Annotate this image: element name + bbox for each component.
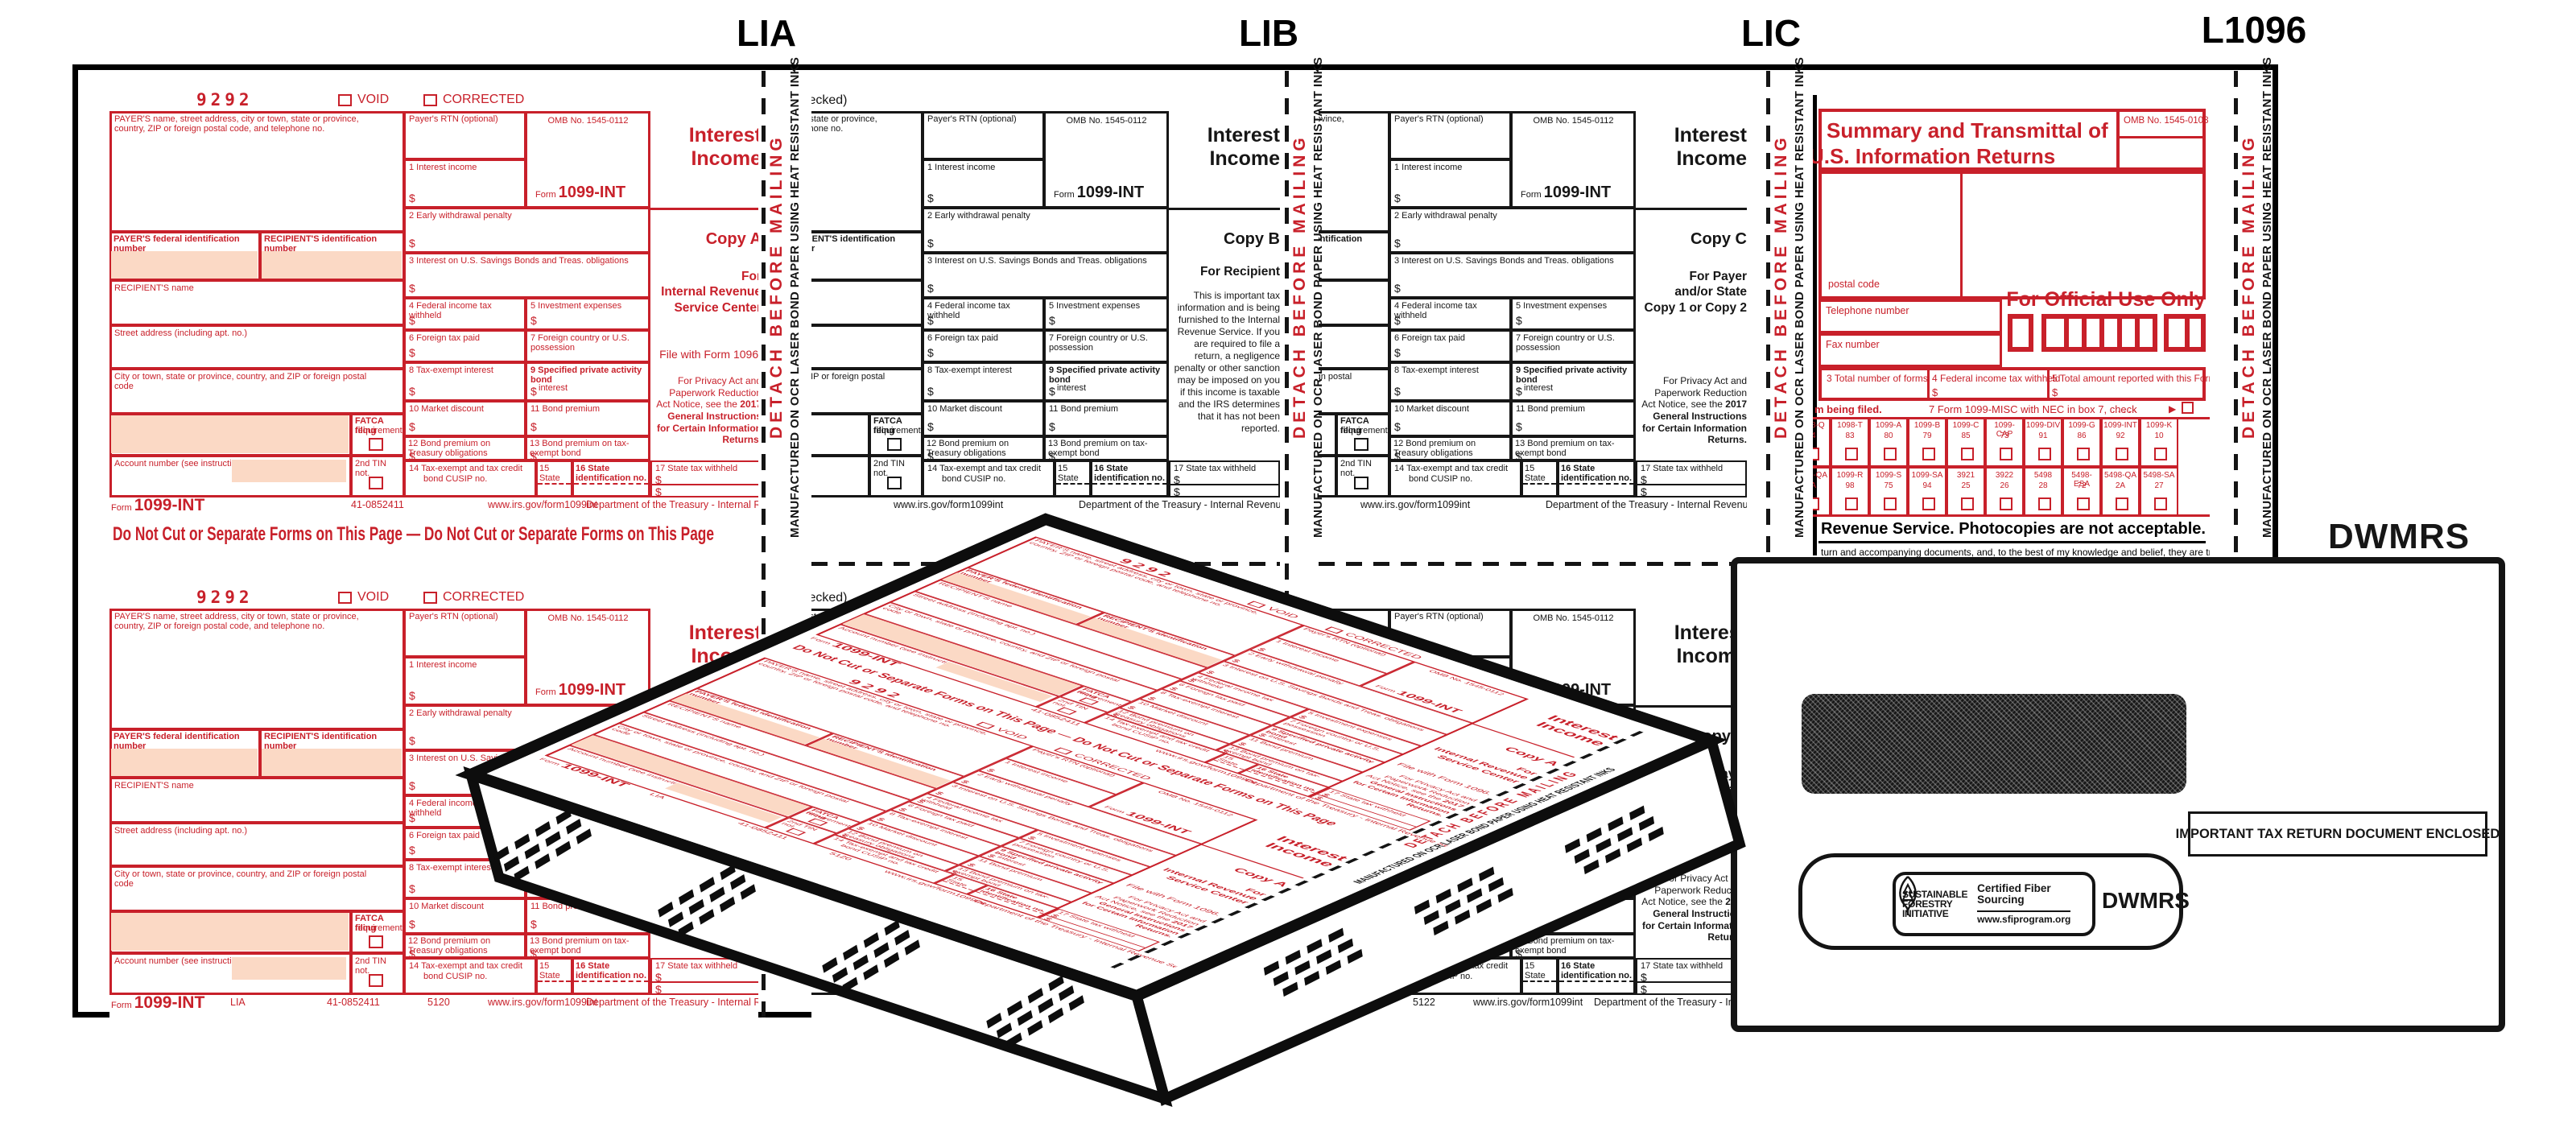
dollar-sign: $: [854, 826, 867, 831]
box6-foreign-tax: 6 Foreign tax paid$: [1389, 330, 1511, 362]
detach-before-mailing-text: DETACH BEFORE MAILING: [1290, 134, 1310, 439]
box11-label: 11 Bond premium: [530, 902, 600, 911]
h-perforation: [1319, 562, 1747, 566]
omb-label: OMB No. 1545-0112: [1513, 116, 1634, 126]
omb-box: OMB No. 1545-0112Form 1099-INT: [526, 111, 650, 208]
box11-bond-premium: 11 Bond premium$: [1511, 401, 1636, 436]
dollar-sign: $: [409, 734, 415, 747]
formtype-number: 92: [2103, 431, 2138, 440]
form-code-9292: 9292: [196, 90, 254, 109]
f1096-box4-label: 4 Federal income tax withheld: [1932, 373, 2060, 384]
box8-label: 8 Tax-exempt interest: [409, 365, 493, 375]
footer-dept: Department of the Treasury - Internal Re…: [1594, 997, 1747, 1008]
box13-tax-exempt-bond: 13 Bond premium on tax-exempt bond$: [526, 934, 650, 958]
box14-cusip: 14 Tax-exempt and tax creditbond CUSIP n…: [923, 460, 1055, 497]
box10-market-discount: 10 Market discount$: [1389, 898, 1511, 934]
box2-early-withdrawal: 2 Early withdrawal penalty$: [404, 208, 650, 253]
box16-state-id: 16 State identification no.: [1558, 460, 1636, 497]
payer-name-box: PAYER'S name, street address, city or to…: [811, 111, 923, 232]
box6-label: 6 Foreign tax paid: [409, 333, 480, 343]
box2-early-withdrawal: 2 Early withdrawal penalty$: [923, 208, 1169, 253]
divider: [2120, 136, 2202, 138]
payer-rtn-label: Payer's RTN (optional): [409, 612, 498, 621]
copy-label: Copy C: [1690, 230, 1747, 249]
box15-label: 15 State: [1525, 464, 1556, 484]
comb-group: [2041, 314, 2157, 352]
box15-state: 15 State: [1521, 958, 1558, 995]
box3-label: 3 Interest on U.S. Savings Bonds and Tre…: [927, 256, 1161, 266]
box8-label: 8 Tax-exempt interest: [927, 365, 1012, 375]
box3-savings-bonds: 3 Interest on U.S. Savings Bonds and Tre…: [404, 253, 650, 298]
payer-rtn-label: Payer's RTN (optional): [1394, 114, 1484, 124]
box11-label: 11 Bond premium: [1516, 902, 1585, 911]
sfi-badge-panel: SUSTAINABLE FORESTRY INITIATIVE Certifie…: [1798, 853, 2183, 950]
box5-investment: 5 Investment expenses$: [526, 298, 650, 330]
fatca-checkbox: [369, 935, 383, 948]
formtype-name: 5498-QA: [2103, 471, 2138, 480]
formtype-cell: 1099-K10: [2140, 417, 2178, 467]
box9-label-2: interest: [1057, 383, 1086, 393]
dollar-sign: $: [530, 314, 537, 327]
formtype-cell: 5498-ESA72: [2062, 467, 2101, 517]
dollar-sign: $: [897, 807, 910, 812]
privacy-note: For Privacy Act and Paperwork Reduction …: [654, 873, 758, 943]
form-number-tag: Form 1099-INT: [1054, 184, 1144, 202]
footer-dept: Department of the Treasury - Internal Re…: [586, 997, 758, 1008]
box12-label: 12 Bond premium on Treasury obligations: [1393, 936, 1510, 956]
formtype-checkbox: [2077, 448, 2090, 460]
f1096-official-use: For Official Use Only: [2006, 288, 2206, 312]
dollar-sign: $: [927, 237, 934, 250]
form-title: InterestIncome: [1259, 835, 1352, 869]
recipient-id-box: RECIPIENT'S identification number: [811, 232, 923, 280]
dashed-divider: [1559, 483, 1634, 485]
manufactured-text: MANUFACTURED ON OCR LASER BOND PAPER USI…: [788, 57, 802, 538]
account-box: Account number (see instructions): [811, 456, 869, 497]
box14-label-2: bond CUSIP no.: [942, 474, 1005, 484]
box10-market-discount: 10 Market discount$: [1389, 401, 1511, 436]
footer-url: www.irs.gov/form1099int: [488, 499, 597, 510]
corrected-label: CORRECTED (if checked): [811, 591, 847, 605]
box4-label: 4 Federal income tax withheld: [1394, 301, 1509, 321]
dollar-sign: $: [1394, 385, 1401, 398]
privacy-note: For Privacy Act and Paperwork Reduction …: [1639, 375, 1747, 446]
box12-treasury: 12 Bond premium on Treasury obligations$: [1389, 436, 1511, 460]
second-tin-checkbox: [887, 974, 902, 987]
divider: [1960, 174, 1963, 297]
box6-foreign-tax: 6 Foreign tax paid$: [923, 330, 1044, 362]
detach-before-mailing-text: DETACH BEFORE MAILING: [767, 134, 786, 439]
formtype-cell: 392125: [1946, 467, 1985, 517]
omb-box: OMB No. 1545-0112Form 1099-INT: [1044, 111, 1169, 208]
formtype-checkbox: [2116, 497, 2128, 510]
envelope-code-label: DWMRS: [2328, 517, 2470, 557]
city-label: City or town, state or province, country…: [114, 869, 388, 890]
box7-label: 7 Foreign country or U.S. possession: [530, 333, 647, 353]
formtype-cell: 1099-C85: [1946, 417, 1985, 467]
manufactured-text: MANUFACTURED ON OCR LASER BOND PAPER USI…: [1311, 57, 1325, 538]
file-with-label: File with Form 1096.: [659, 348, 758, 361]
perforation-line: [1766, 71, 1770, 554]
dashed-divider: [1092, 483, 1167, 485]
payer-rtn-label: Payer's RTN (optional): [1394, 612, 1484, 621]
dollar-sign: $: [927, 918, 934, 931]
dollar-sign: $: [1394, 918, 1401, 931]
omb-label: OMB No. 1545-0112: [1046, 116, 1167, 126]
formtype-cell: 1099-R98: [1831, 467, 1869, 517]
box12-treasury: 12 Bond premium on Treasury obligations$: [1389, 934, 1511, 958]
formtype-checkbox: [2116, 448, 2128, 460]
form-1099-lib-1: CORRECTED (if checked)PAYER'S name, stre…: [811, 90, 1280, 515]
box15-label: 15 State: [1058, 464, 1089, 484]
f1096-box5-label: 5 Total amount reported with this Form 1…: [2052, 373, 2210, 384]
fatca-label-2: requirement: [873, 426, 921, 436]
copy-label: Copy B: [1224, 230, 1280, 249]
formtype-cell: 1099-G86: [2062, 417, 2101, 467]
box9-label-1: 9 Specified private activity bond: [1516, 365, 1633, 386]
payer-name-box: PAYER'S name, street address, city or to…: [109, 609, 404, 729]
omb-label: OMB No. 1545-0112: [1513, 613, 1634, 623]
box1-label: 1 Interest income: [927, 163, 995, 172]
privacy-note: For Privacy Act and Paperwork Reduction …: [654, 375, 758, 446]
dollar-sign: $: [927, 385, 934, 398]
dollar-sign: $: [1125, 705, 1138, 710]
box12-label: 12 Bond premium on Treasury obligations: [408, 936, 525, 956]
fatca-box: FATCA filingrequirement: [869, 911, 923, 953]
dollar-sign: $: [1516, 420, 1522, 433]
footer-url: www.irs.gov/form1099int: [1360, 499, 1470, 510]
formtype-name: 1099-B: [1909, 421, 1945, 430]
shaded-row-box: [109, 911, 351, 953]
box11-bond-premium: 11 Bond premium$: [526, 401, 650, 436]
box16-label: 16 State identification no.: [1561, 464, 1635, 484]
formtype-number: 80: [1871, 431, 1906, 440]
fatca-box: FATCA filingrequirement: [869, 414, 923, 456]
box6-label: 6 Foreign tax paid: [1394, 333, 1465, 343]
box11-bond-premium: 11 Bond premium$: [526, 898, 650, 934]
box2-label: 2 Early withdrawal penalty: [409, 708, 512, 718]
formtype-number: 79: [1909, 431, 1945, 440]
formtype-cell: 1099-INT92: [2101, 417, 2140, 467]
window-envelope: IMPORTANT TAX RETURN DOCUMENT ENCLOSED S…: [1731, 557, 2505, 1032]
formtype-cell: 1099-SA94: [1908, 467, 1946, 517]
dollar-sign: $: [1516, 882, 1522, 895]
for-whom: For Payerand/or StateCopy 1 or Copy 2: [1645, 269, 1747, 316]
box7-label: 7 Foreign country or U.S. possession: [1516, 333, 1633, 353]
box14-label-1: 14 Tax-exempt and tax credit: [927, 961, 1041, 971]
formtype-name: 1098-Q: [1813, 421, 1829, 430]
label-lic: LIC: [1741, 11, 1801, 55]
footer-url: www.irs.gov/form1099int: [1473, 997, 1583, 1008]
f1096-address-box: postal code: [1818, 171, 2206, 299]
shaded-band: [811, 251, 920, 279]
box5-investment: 5 Investment expenses$: [1511, 298, 1636, 330]
payer-rtn-box: Payer's RTN (optional): [923, 111, 1044, 159]
formtype-cell: 5498-QA2A: [2101, 467, 2140, 517]
box14-label-1: 14 Tax-exempt and tax credit: [1394, 961, 1508, 971]
formtype-cell: 1098-Q74: [1813, 417, 1831, 467]
formtype-number: 1A: [1813, 481, 1829, 490]
formtype-cell: 5498-SA27: [2140, 467, 2178, 517]
payer-block-label: PAYER'S name, street address, city or to…: [114, 612, 388, 632]
box11-label: 11 Bond premium: [530, 404, 600, 414]
formtype-name: 1099-R: [1832, 471, 1868, 480]
dollar-sign: $: [1026, 836, 1038, 840]
formtype-checkbox: [1813, 497, 1819, 510]
fatca-box: FATCA filingrequirement: [1336, 911, 1389, 953]
payer-rtn-box: Payer's RTN (optional): [1389, 111, 1511, 159]
box11-bond-premium: 11 Bond premium$: [1511, 898, 1636, 934]
shaded-band: [1319, 913, 1334, 951]
formtype-number: 26: [1987, 481, 2022, 490]
label-lia: LIA: [737, 11, 796, 55]
city-box: City or town, state or province, country…: [109, 866, 404, 911]
box9-private-activity: 9 Specified private activity bondinteres…: [1511, 860, 1636, 898]
box13-label: 13 Bond premium on tax-exempt bond: [1048, 439, 1169, 459]
formtype-number: 86: [2064, 431, 2099, 440]
box16-state-id: 16 State identification no.: [572, 460, 650, 497]
box14-label-1: 14 Tax-exempt and tax credit: [927, 464, 1041, 473]
box15-state: 15 State: [1521, 460, 1558, 497]
detach-before-mailing-text: DETACH BEFORE MAILING: [2240, 134, 2259, 439]
fatca-checkbox: [369, 438, 383, 451]
void-checkbox: [338, 94, 352, 106]
formtype-checkbox: [1922, 497, 1935, 510]
dashed-divider: [1523, 483, 1556, 485]
f1096-declaration: turn and accompanying documents, and, to…: [1821, 547, 2210, 558]
box3-savings-bonds: 3 Interest on U.S. Savings Bonds and Tre…: [1389, 253, 1636, 298]
shaded-band: [111, 749, 258, 776]
box7-foreign-country: 7 Foreign country or U.S. possession: [1511, 828, 1636, 860]
arrow-icon: ▶: [2169, 403, 2176, 415]
shaded-band: [111, 913, 349, 951]
second-tin-label: 2nd TIN not.: [873, 459, 921, 479]
box7-foreign-country: 7 Foreign country or U.S. possession: [526, 330, 650, 362]
formtype-name: 1099-C: [1948, 421, 1984, 430]
box2-early-withdrawal: 2 Early withdrawal penalty$: [1389, 208, 1636, 253]
box7-label: 7 Foreign country or U.S. possession: [1516, 831, 1633, 851]
box10-market-discount: 10 Market discount$: [404, 401, 526, 436]
shaded-patch: [811, 957, 865, 980]
second-tin-box: 2nd TIN not.: [869, 953, 923, 995]
footer-page_code_2: 5122: [1413, 997, 1435, 1008]
omb-label: OMB No. 1545-0112: [527, 116, 649, 126]
dollar-sign: $: [927, 192, 934, 204]
formtype-name: 1099-SA: [1909, 471, 1945, 480]
box6-foreign-tax: 6 Foreign tax paid$: [404, 828, 526, 860]
shaded-patch: [232, 957, 346, 980]
corrected-checkbox: [423, 592, 437, 604]
dollar-sign: $: [1394, 420, 1401, 433]
formtype-number: 83: [1832, 431, 1868, 440]
box8-label: 8 Tax-exempt interest: [1394, 365, 1479, 375]
street-label: Street address (including apt. no.): [114, 328, 247, 338]
fatca-label-2: requirement: [355, 426, 402, 436]
dollar-sign: $: [1049, 420, 1055, 433]
account-label: Account number (see instructions): [114, 459, 249, 469]
box9-private-activity: 9 Specified private activity bondinteres…: [1511, 362, 1636, 401]
comb-divider: [2135, 319, 2140, 347]
dollar-sign: $: [409, 689, 415, 702]
fatca-label-2: requirement: [1340, 426, 1388, 436]
city-label: City or town, state or province, country…: [811, 372, 906, 392]
box8-tax-exempt: 8 Tax-exempt interest$: [404, 362, 526, 401]
shaded-band: [1319, 251, 1387, 279]
recipient-note: This is important tax information and is…: [1172, 290, 1280, 435]
dollar-sign: $: [2052, 386, 2058, 398]
form-1099-lia-1: 9292VOIDCORRECTEDPAYER'S name, street ad…: [109, 90, 758, 515]
shaded-patch: [1319, 957, 1331, 980]
comb-divider: [2082, 319, 2087, 347]
formtype-number: 73: [1987, 431, 2022, 440]
box13-label: 13 Bond premium on tax-exempt bond: [530, 439, 650, 459]
dollar-sign: $: [1255, 647, 1268, 652]
street-box: Street address (including apt. no.): [811, 325, 923, 369]
dollar-sign: $: [1167, 686, 1180, 691]
box14-cusip: 14 Tax-exempt and tax creditbond CUSIP n…: [1389, 460, 1521, 497]
box8-tax-exempt: 8 Tax-exempt interest$: [923, 362, 1044, 401]
box14-label-2: bond CUSIP no.: [1409, 474, 1472, 484]
box5-investment: 5 Investment expenses$: [1044, 298, 1169, 330]
shaded-row-box: [109, 414, 351, 456]
shaded-band: [811, 913, 867, 951]
dollar-sign: $: [1516, 385, 1522, 398]
dollar-sign: $: [1297, 715, 1310, 720]
dollar-sign: $: [409, 237, 415, 250]
dollar-sign: $: [409, 282, 415, 295]
divider: [650, 208, 758, 210]
formtype-checkbox: [2000, 497, 2013, 510]
box1-label: 1 Interest income: [1394, 163, 1462, 172]
label-l1096: L1096: [2202, 8, 2306, 52]
formtype-cell: 1099-QA1A: [1813, 467, 1831, 517]
box10-label: 10 Market discount: [927, 404, 1002, 414]
street-box: Street address (including apt. no.): [109, 823, 404, 866]
dollar-sign: $: [959, 779, 972, 784]
box12-label: 12 Bond premium on Treasury obligations: [927, 439, 1043, 459]
payer-block-label: PAYER'S name, street address, city or to…: [811, 114, 906, 134]
box12-label: 12 Bond premium on Treasury obligations: [1393, 439, 1510, 459]
formtype-number: 85: [1948, 431, 1984, 440]
city-box: City or town, state or province, country…: [811, 369, 923, 414]
footer-url: www.irs.gov/form1099int: [488, 997, 597, 1008]
perforation-line: [762, 71, 766, 1018]
dollar-sign: $: [927, 420, 934, 433]
shaded-row-box: [811, 911, 869, 953]
box8-tax-exempt: 8 Tax-exempt interest$: [1389, 860, 1511, 898]
dollar-sign: $: [1394, 346, 1401, 359]
second-tin-checkbox: [1354, 974, 1368, 987]
corrected-checkbox: [423, 94, 437, 106]
box6-label: 6 Foreign tax paid: [409, 831, 480, 840]
box4-label: 4 Federal income tax withheld: [409, 799, 524, 819]
formtype-number: 25: [1948, 481, 1984, 490]
dollar-sign: $: [874, 817, 887, 822]
payer-fed-id-box: PAYER'S federal identification number: [109, 729, 260, 778]
formtype-number: 27: [2141, 481, 2177, 490]
divider: [1818, 541, 2206, 543]
box4-label: 4 Federal income tax withheld: [927, 301, 1042, 321]
right-zone: InterestIncomeCopy AForInternal RevenueS…: [654, 111, 758, 497]
dashed-divider: [538, 483, 571, 485]
dashed-divider: [1559, 980, 1634, 982]
box16-label: 16 State identification no.: [576, 464, 650, 484]
form-code-9292: 9292: [196, 588, 254, 607]
dashed-divider: [1056, 483, 1089, 485]
formtype-checkbox: [2038, 448, 2051, 460]
box14-cusip: 14 Tax-exempt and tax creditbond CUSIP n…: [1389, 958, 1521, 995]
dollar-sign: $: [985, 768, 997, 773]
dollar-sign: $: [409, 346, 415, 359]
f1096-telephone-box: Telephone number: [1818, 299, 2002, 333]
box4-fed-tax: 4 Federal income tax withheld$: [923, 298, 1044, 330]
fatca-box: FATCA filingrequirement: [1336, 414, 1389, 456]
city-label: City or town, state or province, country…: [1319, 372, 1373, 392]
shaded-patch: [232, 460, 346, 482]
box4-label: 4 Federal income tax withheld: [409, 301, 524, 321]
second-tin-box: 2nd TIN not.: [869, 456, 923, 497]
box9-label-1: 9 Specified private activity bond: [530, 365, 647, 386]
fatca-label-2: requirement: [873, 923, 921, 933]
dollar-sign: $: [933, 791, 946, 795]
box7-label: 7 Foreign country or U.S. possession: [1049, 333, 1166, 353]
sfi-certification-mark: SUSTAINABLE FORESTRY INITIATIVE Certifie…: [1893, 872, 2095, 936]
right-zone: InterestIncomeCopy CFor Payerand/or Stat…: [1639, 111, 1747, 497]
box14-cusip: 14 Tax-exempt and tax creditbond CUSIP n…: [404, 460, 536, 497]
box2-label: 2 Early withdrawal penalty: [409, 211, 512, 221]
formtype-checkbox: [1922, 448, 1935, 460]
box9-label-1: 9 Specified private activity bond: [530, 863, 647, 883]
dots: . . . . .: [2112, 403, 2136, 415]
box14-label-1: 14 Tax-exempt and tax credit: [409, 464, 522, 473]
envelope-window: [1802, 694, 2186, 794]
label-lib: LIB: [1239, 11, 1298, 55]
box10-market-discount: 10 Market discount$: [923, 401, 1044, 436]
box4-fed-tax: 4 Federal income tax withheld$: [404, 795, 526, 828]
f1096-box7-checkbox: [2182, 402, 2194, 414]
dollar-sign: $: [1394, 882, 1401, 895]
account-box: Account number (see instructions): [109, 953, 351, 995]
box1-label: 1 Interest income: [409, 660, 477, 670]
f1096-photocopies: Revenue Service. Photocopies are not acc…: [1821, 520, 2206, 539]
footer-form-number: Form 1099-INT: [111, 993, 204, 1013]
account-box: Account number (see instructions): [109, 456, 351, 497]
second-tin-label: 2nd TIN not.: [873, 956, 921, 976]
formtype-name: 3922: [1987, 471, 2022, 480]
recipient-name-box: RECIPIENT'S name: [109, 778, 404, 823]
privacy-note: For Privacy Act and Paperwork Reduction …: [1341, 767, 1480, 818]
box9-label-2: interest: [539, 881, 568, 890]
dollar-sign: $: [409, 192, 415, 204]
payer-fed-id-box: PAYER'S federal identification number: [109, 232, 260, 280]
formtype-number: 98: [1832, 481, 1868, 490]
box6-label: 6 Foreign tax paid: [927, 333, 998, 343]
corrected-label: CORRECTED: [443, 93, 524, 107]
formtype-name: 1099-DIV: [2025, 421, 2061, 430]
box13-label: 13 Bond premium on tax-exempt bond: [1515, 439, 1636, 459]
dollar-sign: $: [530, 882, 537, 895]
box11-label: 11 Bond premium: [1049, 404, 1118, 414]
street-box: Street address (including apt. no.): [1319, 325, 1389, 369]
formtype-name: 1099-K: [2141, 421, 2177, 430]
payer-block-label: PAYER'S name, street address, city or to…: [1319, 114, 1373, 134]
dollar-sign: $: [1394, 314, 1401, 327]
dashed-divider: [1523, 980, 1556, 982]
divider: [1169, 208, 1280, 210]
formtype-checkbox: [2154, 497, 2167, 510]
fatca-label-2: requirement: [1340, 923, 1388, 933]
box15-label: 15 State: [539, 961, 571, 981]
